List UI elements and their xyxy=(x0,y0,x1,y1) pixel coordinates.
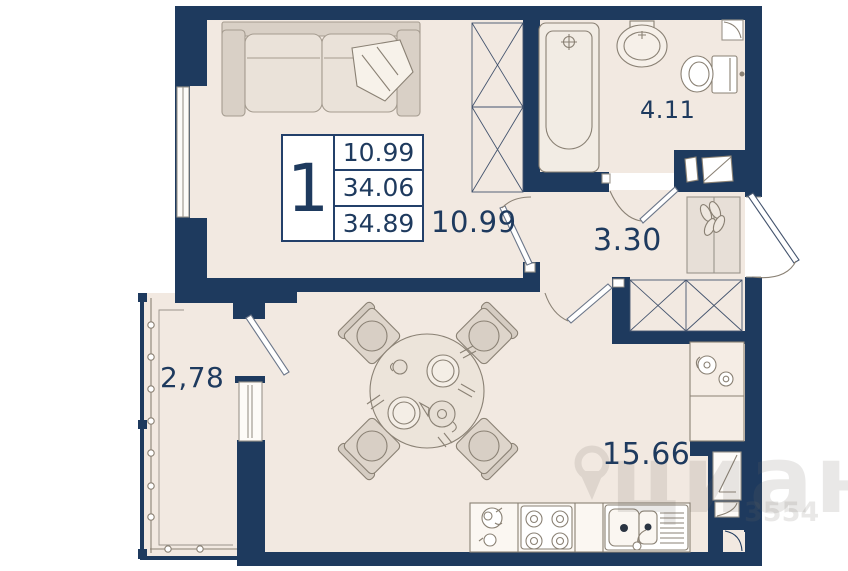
label-hallway: 3.30 xyxy=(593,223,662,258)
stove-icon xyxy=(521,506,572,549)
bathtub xyxy=(539,23,599,172)
legend-areas: 10.99 34.06 34.89 xyxy=(335,136,422,240)
legend-total-area: 34.89 xyxy=(335,205,422,240)
kitchen-door xyxy=(545,284,612,323)
dining-set xyxy=(337,301,520,482)
legend-living-area: 10.99 xyxy=(335,136,422,169)
toilet-icon xyxy=(681,56,744,93)
bathroom-door xyxy=(602,174,678,223)
vent-flap-icon xyxy=(722,20,743,40)
wardrobe xyxy=(472,23,523,192)
hall-closet xyxy=(613,279,742,331)
bathroom-sink-icon xyxy=(617,21,667,67)
label-balcony: 2,78 xyxy=(160,361,224,394)
label-bathroom: 4.11 xyxy=(640,96,695,124)
legend-rooms-count: 1 xyxy=(283,136,335,240)
sofa xyxy=(222,22,420,116)
label-kitchen: 15.66 xyxy=(602,437,690,472)
label-bedroom: 10.99 xyxy=(431,205,517,239)
area-legend: 1 10.99 34.06 34.89 xyxy=(281,134,424,242)
watermark-code: 3554 xyxy=(744,497,819,528)
balcony-door xyxy=(246,315,289,375)
shaft-flaps xyxy=(685,156,733,183)
legend-area: 34.06 xyxy=(335,169,422,204)
partition-window xyxy=(239,382,262,441)
balcony-glazing xyxy=(138,293,240,560)
shoe-cabinet xyxy=(687,197,740,273)
floor-plan: циан 3554 1 10.99 34.06 34.89 10.99 4.11… xyxy=(0,0,848,571)
bedroom-window xyxy=(177,87,189,217)
entrance-door xyxy=(746,193,799,278)
